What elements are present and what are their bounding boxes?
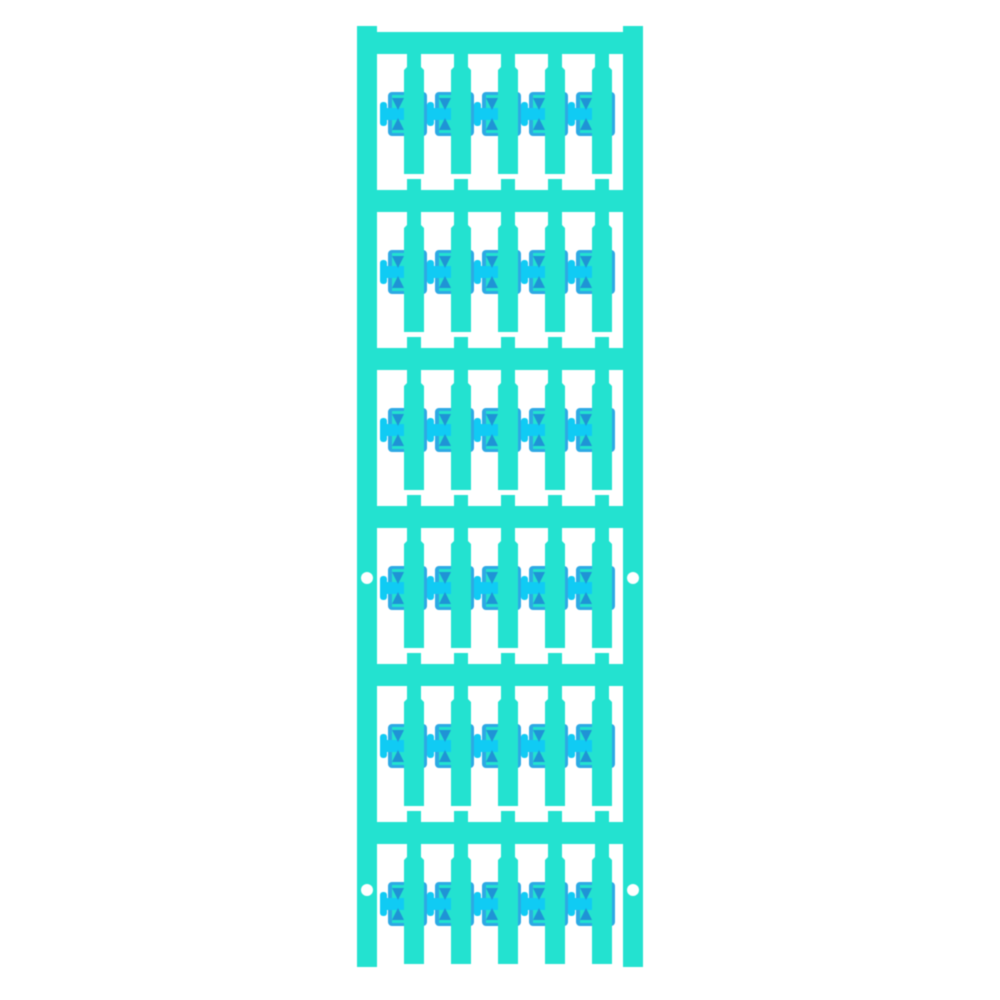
clip-tooth-lower bbox=[486, 592, 498, 604]
clip-tab bbox=[380, 260, 387, 284]
clip-tooth-lower bbox=[580, 750, 592, 762]
clip-tab bbox=[521, 418, 528, 442]
clip-tab bbox=[521, 734, 528, 758]
marker-strip bbox=[404, 528, 424, 648]
clip-tooth-lower bbox=[439, 434, 451, 446]
clip-tooth-lower bbox=[439, 750, 451, 762]
clip-tooth-lower bbox=[439, 118, 451, 130]
clip-tooth-upper bbox=[580, 572, 592, 584]
crossbar bbox=[357, 32, 643, 54]
marker-strip bbox=[404, 370, 424, 490]
clip-tab bbox=[474, 892, 481, 916]
sprue-stub bbox=[501, 495, 515, 506]
clip-tooth-upper bbox=[392, 572, 404, 584]
clip-tooth-lower bbox=[392, 276, 404, 288]
marker-strip bbox=[592, 212, 612, 332]
marker-strip bbox=[592, 686, 612, 806]
clip-tooth-lower bbox=[533, 434, 545, 446]
clip-tooth-lower bbox=[580, 276, 592, 288]
clip-tab bbox=[427, 260, 434, 284]
clip-tab bbox=[380, 418, 387, 442]
sprue-stub bbox=[501, 179, 515, 190]
sprue-stub bbox=[454, 337, 468, 348]
clip-tooth-lower bbox=[439, 276, 451, 288]
marker-strip bbox=[451, 686, 471, 806]
clip-tooth-lower bbox=[392, 750, 404, 762]
clip-tooth-lower bbox=[533, 592, 545, 604]
marker-strip bbox=[545, 686, 565, 806]
crossbar bbox=[357, 664, 643, 686]
marker-strip bbox=[545, 528, 565, 648]
sprue-stub bbox=[454, 811, 468, 822]
clip-tooth-upper bbox=[580, 414, 592, 426]
sprue-stub bbox=[454, 495, 468, 506]
clip-tooth-lower bbox=[580, 908, 592, 920]
marker-strip bbox=[592, 54, 612, 174]
clip-tab bbox=[427, 734, 434, 758]
sprue-stub bbox=[595, 495, 609, 506]
sprue-stub bbox=[501, 337, 515, 348]
marker-strip bbox=[451, 844, 471, 964]
clip-tooth-upper bbox=[439, 730, 451, 742]
sprue-stub bbox=[548, 337, 562, 348]
clip-tab bbox=[568, 260, 575, 284]
sprue-stub bbox=[595, 337, 609, 348]
clip-tooth-upper bbox=[392, 888, 404, 900]
clip-tooth-upper bbox=[533, 98, 545, 110]
clip-tooth-upper bbox=[486, 572, 498, 584]
clip-tab bbox=[427, 102, 434, 126]
sprue-stub bbox=[595, 811, 609, 822]
clip-tooth-upper bbox=[486, 730, 498, 742]
marker-strip bbox=[451, 54, 471, 174]
clip-tooth-lower bbox=[439, 592, 451, 604]
clip-tab bbox=[521, 260, 528, 284]
clip-tab bbox=[521, 102, 528, 126]
clip-tooth-upper bbox=[533, 572, 545, 584]
clip-tab bbox=[521, 576, 528, 600]
clip-tooth-upper bbox=[392, 98, 404, 110]
marker-strip bbox=[404, 54, 424, 174]
clip-tooth-lower bbox=[439, 908, 451, 920]
clip-tab bbox=[474, 260, 481, 284]
sprue-stub bbox=[595, 179, 609, 190]
sprue-stub bbox=[407, 179, 421, 190]
sprue-stub bbox=[501, 653, 515, 664]
clip-tooth-upper bbox=[486, 256, 498, 268]
sprue-stub bbox=[548, 653, 562, 664]
clip-tab bbox=[380, 892, 387, 916]
clip-tab bbox=[380, 576, 387, 600]
sprue-stub bbox=[595, 653, 609, 664]
marker-strip bbox=[451, 370, 471, 490]
clip-tooth-lower bbox=[486, 276, 498, 288]
clip-tooth-lower bbox=[486, 750, 498, 762]
clip-tooth-lower bbox=[486, 118, 498, 130]
clip-tooth-upper bbox=[533, 888, 545, 900]
clip-tab bbox=[568, 892, 575, 916]
clip-tooth-upper bbox=[439, 98, 451, 110]
marker-strip bbox=[592, 844, 612, 964]
sprue-stub bbox=[407, 337, 421, 348]
clip-tooth-upper bbox=[486, 414, 498, 426]
mounting-hole bbox=[361, 572, 373, 584]
marker-strip bbox=[498, 844, 518, 964]
clip-tab bbox=[427, 576, 434, 600]
clip-tab bbox=[427, 892, 434, 916]
cable-marker-card bbox=[0, 0, 1000, 1000]
clip-tab bbox=[474, 576, 481, 600]
clip-tooth-lower bbox=[580, 118, 592, 130]
clip-tooth-upper bbox=[533, 256, 545, 268]
clip-tooth-lower bbox=[533, 118, 545, 130]
product-photo-canvas bbox=[0, 0, 1000, 1000]
clip-tooth-upper bbox=[533, 414, 545, 426]
sprue-stub bbox=[501, 811, 515, 822]
sprue-stub bbox=[548, 179, 562, 190]
clip-tooth-upper bbox=[580, 888, 592, 900]
sprue-stub bbox=[548, 811, 562, 822]
clip-tooth-upper bbox=[392, 730, 404, 742]
marker-strip bbox=[451, 212, 471, 332]
clip-tooth-upper bbox=[439, 888, 451, 900]
marker-strip bbox=[592, 370, 612, 490]
clip-tab bbox=[568, 576, 575, 600]
clip-tooth-lower bbox=[580, 592, 592, 604]
clip-tab bbox=[474, 734, 481, 758]
mounting-hole bbox=[627, 572, 639, 584]
clip-tab bbox=[568, 734, 575, 758]
clip-tab bbox=[427, 418, 434, 442]
sprue-stub bbox=[548, 495, 562, 506]
sprue-stub bbox=[454, 179, 468, 190]
clip-tooth-upper bbox=[580, 256, 592, 268]
clip-tooth-upper bbox=[533, 730, 545, 742]
clip-tooth-lower bbox=[533, 908, 545, 920]
clip-tooth-lower bbox=[533, 276, 545, 288]
marker-strip bbox=[404, 844, 424, 964]
marker-strip bbox=[498, 686, 518, 806]
marker-strip bbox=[592, 528, 612, 648]
marker-strip bbox=[498, 212, 518, 332]
marker-strip bbox=[404, 212, 424, 332]
clip-tooth-lower bbox=[392, 118, 404, 130]
clip-tooth-lower bbox=[392, 592, 404, 604]
crossbar bbox=[357, 190, 643, 212]
marker-strip bbox=[545, 212, 565, 332]
crossbar bbox=[357, 506, 643, 528]
clip-tab bbox=[474, 418, 481, 442]
clip-tab bbox=[474, 102, 481, 126]
sprue-stub bbox=[407, 811, 421, 822]
marker-strip bbox=[498, 370, 518, 490]
marker-strip bbox=[498, 528, 518, 648]
marker-strip bbox=[545, 370, 565, 490]
clip-tooth-lower bbox=[392, 908, 404, 920]
mounting-hole bbox=[627, 884, 639, 896]
clip-tooth-lower bbox=[580, 434, 592, 446]
clip-tooth-upper bbox=[439, 256, 451, 268]
marker-strip bbox=[451, 528, 471, 648]
clip-tooth-upper bbox=[392, 256, 404, 268]
marker-strip bbox=[545, 844, 565, 964]
marker-strip bbox=[498, 54, 518, 174]
sprue-stub bbox=[407, 495, 421, 506]
clip-tooth-upper bbox=[392, 414, 404, 426]
clip-tab bbox=[568, 102, 575, 126]
clip-tab bbox=[380, 734, 387, 758]
clip-tooth-upper bbox=[486, 888, 498, 900]
clip-tooth-upper bbox=[580, 98, 592, 110]
sprue-stub bbox=[454, 653, 468, 664]
clip-tooth-upper bbox=[580, 730, 592, 742]
clip-tab bbox=[380, 102, 387, 126]
marker-strip bbox=[404, 686, 424, 806]
clip-tooth-lower bbox=[533, 750, 545, 762]
mounting-hole bbox=[361, 884, 373, 896]
sprue-stub bbox=[407, 653, 421, 664]
clip-tooth-upper bbox=[439, 572, 451, 584]
crossbar bbox=[357, 822, 643, 844]
clip-tooth-lower bbox=[486, 434, 498, 446]
clip-tooth-upper bbox=[439, 414, 451, 426]
clip-tooth-lower bbox=[486, 908, 498, 920]
marker-strip bbox=[545, 54, 565, 174]
crossbar bbox=[357, 348, 643, 370]
clip-tooth-upper bbox=[486, 98, 498, 110]
clip-tab bbox=[521, 892, 528, 916]
clip-tab bbox=[568, 418, 575, 442]
clip-tooth-lower bbox=[392, 434, 404, 446]
